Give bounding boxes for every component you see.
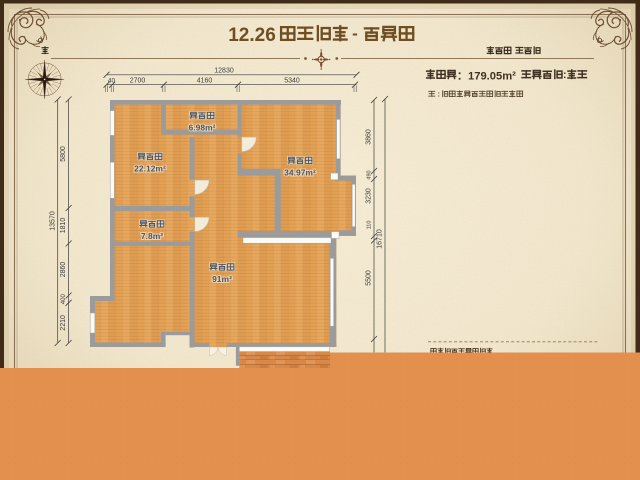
svg-text:3230: 3230 [366, 188, 373, 204]
svg-text:5340: 5340 [284, 77, 300, 84]
svg-text:6.98m²: 6.98m² [189, 123, 216, 133]
svg-text:-: - [352, 24, 358, 43]
svg-text:5500: 5500 [366, 270, 373, 286]
svg-text:2860: 2860 [60, 262, 67, 278]
svg-text:91m²: 91m² [212, 274, 232, 284]
svg-text:16710: 16710 [377, 229, 384, 249]
svg-text:40: 40 [108, 77, 116, 84]
svg-text:1810: 1810 [60, 218, 67, 234]
svg-text:400: 400 [61, 294, 67, 305]
svg-text:4160: 4160 [197, 77, 213, 84]
svg-text:490: 490 [367, 170, 373, 179]
svg-text:110: 110 [367, 221, 373, 230]
svg-text:12.26: 12.26 [228, 25, 276, 46]
svg-text::: : [438, 90, 441, 99]
svg-text:12830: 12830 [214, 68, 234, 75]
svg-text:2210: 2210 [60, 315, 67, 331]
svg-text:7.8m²: 7.8m² [141, 231, 163, 241]
svg-text:22.12m²: 22.12m² [134, 164, 166, 174]
svg-text:13570: 13570 [50, 211, 57, 231]
svg-text:34.97m²: 34.97m² [284, 168, 316, 178]
svg-text:：: ： [457, 70, 468, 82]
svg-text:2700: 2700 [130, 77, 146, 84]
svg-text:5800: 5800 [60, 146, 67, 162]
svg-text::: : [563, 69, 567, 81]
svg-text:3860: 3860 [366, 129, 373, 145]
svg-text:179.05m²: 179.05m² [468, 71, 516, 83]
